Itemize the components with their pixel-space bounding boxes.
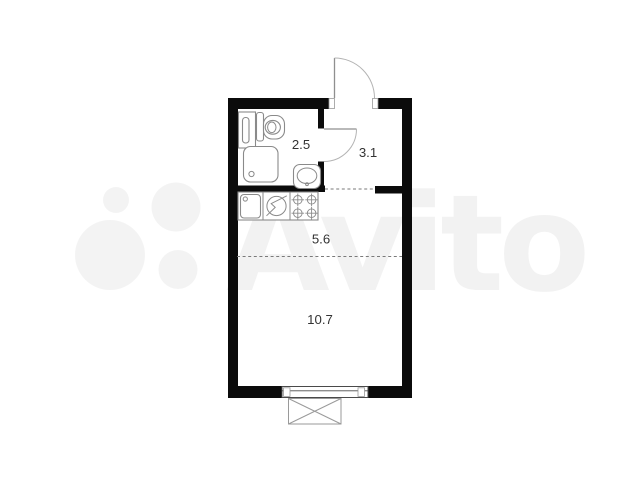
wall-left [228,98,238,398]
entry-door-arc [335,58,375,98]
toilet-icon [257,113,285,142]
wall-right [402,98,412,398]
balcony-icon [289,399,342,425]
window-icon [282,387,368,398]
wall-bottom-right [368,386,412,398]
avito-logo-circles-icon [75,183,201,291]
wall-bottom-left [228,386,282,398]
bathroom-area-label: 2.5 [292,137,310,152]
washing-machine-icon [239,112,256,148]
kitchen-area-label: 5.6 [312,232,330,247]
floorplan-image: Avito [0,0,640,480]
floorplan-svg: Avito [0,0,640,480]
kitchen-sink-icon [241,195,261,219]
washbasin-icon [294,165,321,189]
bathroom-door-arc [324,129,357,162]
bathroom-door-swing-icon [324,129,357,162]
wall-top-left [228,98,329,109]
living-room-area-label: 10.7 [307,312,333,327]
wall-bathroom-right-upper [318,108,324,129]
hallway-area-label: 3.1 [359,145,377,160]
wall-hallway-stub [375,186,402,194]
entry-door-swing-icon [329,58,378,109]
kitchen-fixtures [238,192,318,220]
entry-door-jamb-right [373,99,379,109]
shower-icon [244,147,279,183]
entry-door-jamb-left [329,99,335,109]
